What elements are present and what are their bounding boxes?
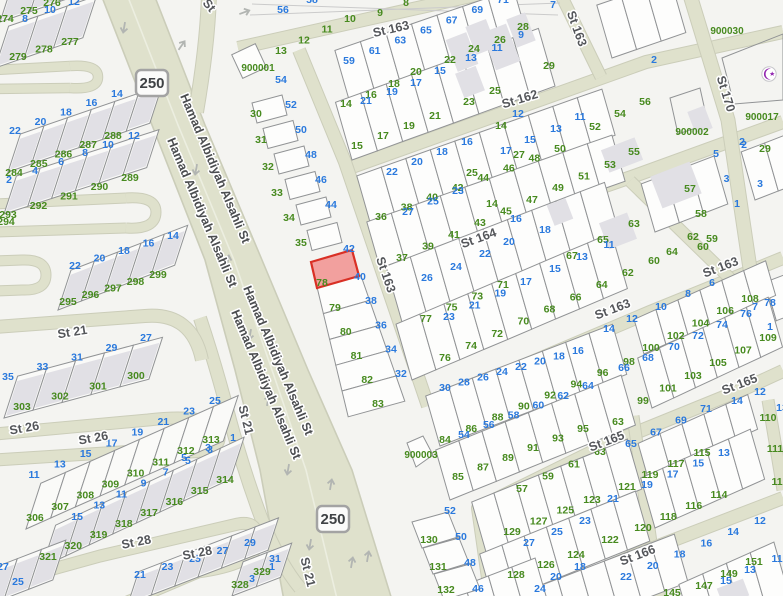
svg-text:18: 18 bbox=[553, 350, 565, 362]
svg-text:18: 18 bbox=[60, 107, 72, 119]
svg-text:56: 56 bbox=[639, 96, 651, 108]
svg-text:277: 277 bbox=[61, 36, 79, 48]
svg-text:319: 319 bbox=[90, 529, 108, 541]
svg-text:60: 60 bbox=[697, 241, 709, 253]
svg-text:7: 7 bbox=[550, 0, 556, 11]
svg-text:105: 105 bbox=[709, 357, 727, 369]
svg-text:72: 72 bbox=[692, 330, 704, 342]
svg-text:118: 118 bbox=[660, 511, 677, 523]
svg-text:70: 70 bbox=[668, 341, 680, 353]
svg-text:22: 22 bbox=[386, 166, 398, 178]
svg-text:20: 20 bbox=[534, 356, 546, 368]
svg-text:25: 25 bbox=[209, 395, 221, 407]
svg-text:291: 291 bbox=[60, 191, 78, 203]
svg-text:21: 21 bbox=[134, 569, 146, 581]
svg-text:76: 76 bbox=[740, 308, 752, 320]
svg-text:22: 22 bbox=[515, 361, 527, 373]
svg-text:54: 54 bbox=[275, 74, 287, 86]
svg-text:62: 62 bbox=[557, 390, 569, 402]
svg-text:14: 14 bbox=[495, 120, 507, 132]
svg-text:122: 122 bbox=[601, 534, 619, 546]
svg-text:34: 34 bbox=[385, 344, 397, 356]
svg-text:58: 58 bbox=[306, 0, 318, 6]
svg-text:900001: 900001 bbox=[241, 63, 275, 74]
svg-text:60: 60 bbox=[533, 400, 545, 412]
svg-text:59: 59 bbox=[542, 471, 554, 483]
svg-text:3: 3 bbox=[249, 573, 255, 585]
svg-text:117: 117 bbox=[668, 458, 685, 470]
svg-text:39: 39 bbox=[422, 240, 434, 252]
svg-text:296: 296 bbox=[82, 289, 100, 301]
svg-text:58: 58 bbox=[695, 208, 707, 220]
svg-text:9: 9 bbox=[141, 477, 147, 489]
svg-text:27: 27 bbox=[523, 537, 535, 549]
svg-text:5: 5 bbox=[181, 452, 187, 464]
svg-text:32: 32 bbox=[262, 161, 274, 173]
svg-text:18: 18 bbox=[539, 224, 551, 236]
svg-text:10: 10 bbox=[44, 4, 56, 16]
svg-text:57: 57 bbox=[684, 183, 696, 195]
svg-text:116: 116 bbox=[685, 500, 702, 512]
svg-text:70: 70 bbox=[518, 316, 530, 328]
svg-text:128: 128 bbox=[507, 569, 525, 581]
svg-text:306: 306 bbox=[26, 512, 44, 524]
svg-text:9: 9 bbox=[518, 29, 524, 41]
svg-text:12: 12 bbox=[754, 515, 766, 527]
svg-text:9: 9 bbox=[377, 7, 383, 19]
svg-text:16: 16 bbox=[701, 537, 713, 549]
svg-text:12: 12 bbox=[626, 313, 638, 325]
svg-text:63: 63 bbox=[394, 35, 406, 47]
svg-text:127: 127 bbox=[530, 515, 548, 527]
svg-text:26: 26 bbox=[421, 272, 433, 284]
svg-text:3: 3 bbox=[205, 442, 211, 454]
svg-text:328: 328 bbox=[231, 579, 249, 591]
svg-text:3: 3 bbox=[724, 173, 730, 185]
svg-text:20: 20 bbox=[550, 571, 562, 583]
svg-text:101: 101 bbox=[659, 382, 677, 394]
svg-text:64: 64 bbox=[666, 246, 678, 258]
svg-text:108: 108 bbox=[741, 293, 759, 305]
svg-text:2: 2 bbox=[651, 54, 657, 66]
svg-text:12: 12 bbox=[128, 130, 140, 142]
svg-text:303: 303 bbox=[13, 401, 31, 413]
svg-text:23: 23 bbox=[162, 561, 174, 573]
svg-text:64: 64 bbox=[596, 279, 608, 291]
svg-text:25: 25 bbox=[466, 167, 478, 179]
svg-text:61: 61 bbox=[568, 458, 580, 470]
svg-text:107: 107 bbox=[734, 345, 752, 357]
svg-text:23: 23 bbox=[452, 185, 464, 197]
svg-text:62: 62 bbox=[622, 267, 634, 279]
svg-text:10: 10 bbox=[102, 139, 114, 151]
svg-text:62: 62 bbox=[687, 231, 699, 243]
svg-text:29: 29 bbox=[244, 537, 256, 549]
svg-text:23: 23 bbox=[443, 311, 455, 323]
svg-text:294: 294 bbox=[0, 216, 15, 228]
svg-text:2: 2 bbox=[6, 174, 12, 186]
svg-text:22: 22 bbox=[479, 248, 491, 260]
svg-text:68: 68 bbox=[642, 352, 654, 364]
svg-text:129: 129 bbox=[503, 526, 521, 538]
svg-text:76: 76 bbox=[439, 352, 451, 364]
svg-text:23: 23 bbox=[463, 96, 475, 108]
svg-text:320: 320 bbox=[65, 540, 83, 552]
svg-text:274: 274 bbox=[0, 13, 14, 25]
svg-text:14: 14 bbox=[731, 395, 743, 407]
svg-text:17: 17 bbox=[500, 145, 512, 157]
svg-text:112: 112 bbox=[772, 476, 783, 488]
svg-text:50: 50 bbox=[295, 124, 307, 136]
svg-text:316: 316 bbox=[166, 496, 184, 508]
svg-text:16: 16 bbox=[143, 238, 155, 250]
svg-text:15: 15 bbox=[80, 448, 92, 460]
svg-text:2: 2 bbox=[741, 139, 747, 151]
svg-text:297: 297 bbox=[104, 283, 122, 295]
svg-text:53: 53 bbox=[604, 159, 616, 171]
svg-text:115: 115 bbox=[694, 447, 711, 459]
svg-text:31: 31 bbox=[255, 134, 267, 146]
svg-text:15: 15 bbox=[549, 263, 561, 275]
svg-text:308: 308 bbox=[77, 490, 95, 502]
svg-text:93: 93 bbox=[552, 433, 564, 445]
svg-text:7: 7 bbox=[163, 466, 169, 478]
svg-text:59: 59 bbox=[343, 55, 355, 67]
svg-text:103: 103 bbox=[684, 370, 702, 382]
svg-text:900017: 900017 bbox=[745, 112, 779, 123]
svg-text:55: 55 bbox=[628, 146, 640, 158]
svg-text:21: 21 bbox=[157, 416, 169, 428]
svg-text:17: 17 bbox=[377, 130, 389, 142]
svg-text:25: 25 bbox=[489, 85, 501, 97]
svg-text:46: 46 bbox=[472, 583, 484, 595]
svg-text:106: 106 bbox=[716, 305, 734, 317]
svg-text:22: 22 bbox=[9, 125, 21, 137]
svg-text:300: 300 bbox=[127, 370, 145, 382]
svg-text:44: 44 bbox=[477, 172, 489, 184]
svg-text:27: 27 bbox=[140, 332, 152, 344]
svg-text:19: 19 bbox=[403, 120, 415, 132]
svg-text:17: 17 bbox=[667, 468, 679, 480]
svg-text:64: 64 bbox=[582, 380, 594, 392]
svg-text:124: 124 bbox=[567, 549, 585, 561]
svg-text:13: 13 bbox=[718, 447, 730, 459]
svg-text:111: 111 bbox=[767, 443, 783, 455]
svg-text:18: 18 bbox=[674, 549, 686, 561]
svg-text:44: 44 bbox=[325, 199, 337, 211]
svg-text:80: 80 bbox=[340, 326, 352, 338]
svg-text:13: 13 bbox=[576, 251, 588, 263]
svg-text:19: 19 bbox=[386, 86, 398, 98]
svg-text:317: 317 bbox=[140, 507, 158, 519]
svg-text:21: 21 bbox=[607, 493, 619, 505]
svg-text:48: 48 bbox=[529, 153, 541, 165]
svg-text:301: 301 bbox=[89, 380, 107, 392]
svg-text:292: 292 bbox=[30, 200, 48, 212]
svg-text:20: 20 bbox=[411, 156, 423, 168]
svg-text:12: 12 bbox=[298, 34, 310, 46]
svg-text:67: 67 bbox=[650, 426, 662, 438]
svg-text:298: 298 bbox=[127, 276, 145, 288]
svg-text:14: 14 bbox=[167, 230, 179, 242]
svg-text:18: 18 bbox=[436, 146, 448, 158]
svg-text:38: 38 bbox=[365, 295, 377, 307]
svg-text:46: 46 bbox=[315, 174, 327, 186]
svg-text:11: 11 bbox=[28, 469, 39, 481]
svg-text:8: 8 bbox=[685, 288, 691, 300]
svg-text:15: 15 bbox=[720, 575, 732, 587]
svg-text:20: 20 bbox=[410, 66, 422, 78]
svg-text:13: 13 bbox=[465, 52, 477, 64]
svg-text:27: 27 bbox=[0, 561, 9, 573]
svg-text:12: 12 bbox=[68, 0, 80, 8]
svg-text:114: 114 bbox=[711, 489, 728, 501]
svg-text:121: 121 bbox=[618, 481, 636, 493]
svg-text:14: 14 bbox=[486, 198, 498, 210]
svg-text:307: 307 bbox=[51, 501, 69, 513]
svg-text:56: 56 bbox=[277, 4, 289, 16]
svg-text:66: 66 bbox=[570, 291, 582, 303]
svg-text:3: 3 bbox=[757, 178, 763, 190]
svg-text:318: 318 bbox=[115, 518, 133, 530]
svg-text:92: 92 bbox=[544, 389, 556, 401]
svg-text:10: 10 bbox=[655, 301, 667, 313]
svg-text:29: 29 bbox=[106, 342, 118, 354]
svg-text:51: 51 bbox=[578, 171, 590, 183]
svg-text:13: 13 bbox=[54, 458, 66, 470]
svg-text:91: 91 bbox=[527, 442, 539, 454]
svg-text:84: 84 bbox=[439, 434, 451, 446]
svg-text:24: 24 bbox=[534, 583, 546, 595]
svg-text:16: 16 bbox=[572, 345, 584, 357]
svg-text:8: 8 bbox=[82, 147, 88, 159]
svg-text:120: 120 bbox=[634, 522, 652, 534]
svg-text:17: 17 bbox=[410, 77, 422, 89]
svg-text:96: 96 bbox=[597, 367, 609, 379]
svg-text:278: 278 bbox=[35, 44, 53, 56]
svg-text:65: 65 bbox=[420, 25, 432, 37]
svg-text:34: 34 bbox=[283, 212, 295, 224]
svg-text:66: 66 bbox=[618, 362, 630, 374]
svg-text:25: 25 bbox=[551, 526, 563, 538]
svg-text:25: 25 bbox=[12, 576, 24, 588]
svg-text:77: 77 bbox=[420, 313, 432, 325]
svg-text:90: 90 bbox=[518, 401, 530, 413]
svg-text:85: 85 bbox=[452, 471, 464, 483]
svg-text:95: 95 bbox=[577, 423, 589, 435]
svg-text:4: 4 bbox=[32, 165, 38, 177]
svg-text:104: 104 bbox=[692, 318, 710, 330]
svg-text:126: 126 bbox=[537, 559, 555, 571]
svg-text:13: 13 bbox=[93, 500, 105, 512]
svg-text:13: 13 bbox=[776, 402, 783, 414]
svg-text:8: 8 bbox=[403, 0, 409, 9]
svg-text:321: 321 bbox=[39, 551, 57, 563]
svg-text:14: 14 bbox=[340, 98, 352, 110]
svg-text:31: 31 bbox=[71, 352, 83, 364]
svg-text:33: 33 bbox=[37, 361, 49, 373]
svg-text:130: 130 bbox=[420, 534, 438, 546]
svg-text:19: 19 bbox=[494, 288, 506, 300]
svg-text:27: 27 bbox=[217, 545, 229, 557]
svg-text:11: 11 bbox=[491, 42, 502, 54]
svg-text:250: 250 bbox=[320, 511, 345, 528]
svg-text:52: 52 bbox=[285, 99, 297, 111]
svg-text:46: 46 bbox=[503, 162, 515, 174]
svg-text:71: 71 bbox=[497, 0, 509, 6]
svg-text:110: 110 bbox=[760, 412, 777, 424]
svg-text:87: 87 bbox=[477, 461, 489, 473]
svg-text:78: 78 bbox=[316, 277, 328, 289]
svg-text:40: 40 bbox=[354, 271, 366, 283]
svg-text:8: 8 bbox=[22, 13, 28, 25]
svg-text:78: 78 bbox=[764, 297, 776, 309]
svg-text:67: 67 bbox=[446, 14, 458, 26]
svg-text:15: 15 bbox=[351, 140, 363, 152]
svg-text:19: 19 bbox=[132, 427, 144, 439]
svg-text:89: 89 bbox=[502, 452, 514, 464]
svg-text:123: 123 bbox=[583, 494, 601, 506]
svg-text:22: 22 bbox=[620, 571, 632, 583]
svg-text:83: 83 bbox=[372, 398, 384, 410]
svg-text:47: 47 bbox=[526, 194, 538, 206]
svg-text:12: 12 bbox=[754, 386, 766, 398]
svg-text:35: 35 bbox=[2, 371, 14, 383]
svg-text:48: 48 bbox=[305, 149, 317, 161]
svg-text:35: 35 bbox=[295, 237, 307, 249]
svg-text:16: 16 bbox=[510, 213, 522, 225]
svg-text:11: 11 bbox=[771, 553, 782, 565]
svg-text:290: 290 bbox=[91, 181, 109, 193]
svg-text:58: 58 bbox=[508, 409, 520, 421]
svg-text:52: 52 bbox=[444, 505, 456, 517]
svg-text:49: 49 bbox=[552, 182, 564, 194]
svg-text:29: 29 bbox=[759, 143, 771, 155]
svg-text:145: 145 bbox=[663, 587, 681, 596]
svg-text:900030: 900030 bbox=[710, 26, 744, 37]
svg-text:69: 69 bbox=[675, 415, 687, 427]
svg-text:109: 109 bbox=[759, 332, 777, 344]
svg-text:27: 27 bbox=[402, 206, 414, 218]
svg-text:22: 22 bbox=[444, 54, 456, 66]
svg-text:20: 20 bbox=[503, 236, 515, 248]
svg-text:56: 56 bbox=[483, 419, 495, 431]
svg-text:102: 102 bbox=[667, 330, 685, 342]
svg-text:94: 94 bbox=[571, 378, 583, 390]
svg-text:72: 72 bbox=[491, 328, 503, 340]
svg-text:125: 125 bbox=[557, 505, 575, 517]
svg-text:68: 68 bbox=[544, 304, 556, 316]
svg-text:65: 65 bbox=[625, 438, 637, 450]
svg-text:52: 52 bbox=[589, 121, 601, 133]
svg-text:11: 11 bbox=[116, 489, 127, 501]
svg-text:279: 279 bbox=[9, 51, 27, 63]
svg-text:119: 119 bbox=[642, 469, 659, 481]
svg-text:27: 27 bbox=[513, 149, 525, 161]
svg-text:14: 14 bbox=[111, 88, 123, 100]
svg-text:132: 132 bbox=[437, 584, 455, 596]
svg-text:18: 18 bbox=[118, 245, 130, 257]
svg-text:33: 33 bbox=[271, 187, 283, 199]
svg-text:79: 79 bbox=[329, 302, 341, 314]
svg-text:37: 37 bbox=[396, 252, 408, 264]
svg-text:25: 25 bbox=[427, 196, 439, 208]
svg-text:315: 315 bbox=[191, 485, 209, 497]
svg-text:13: 13 bbox=[744, 564, 756, 576]
svg-text:61: 61 bbox=[369, 45, 381, 57]
svg-text:15: 15 bbox=[434, 65, 446, 77]
svg-text:21: 21 bbox=[469, 299, 481, 311]
svg-text:82: 82 bbox=[361, 374, 373, 386]
svg-text:900003: 900003 bbox=[404, 450, 438, 461]
svg-text:30: 30 bbox=[439, 382, 451, 394]
svg-text:23: 23 bbox=[183, 406, 195, 418]
svg-text:5: 5 bbox=[713, 148, 719, 160]
svg-text:21: 21 bbox=[429, 110, 441, 122]
svg-text:30: 30 bbox=[250, 108, 262, 120]
svg-text:15: 15 bbox=[692, 458, 704, 470]
svg-text:16: 16 bbox=[461, 136, 473, 148]
svg-text:24: 24 bbox=[496, 366, 508, 378]
svg-text:99: 99 bbox=[637, 395, 649, 407]
svg-text:20: 20 bbox=[35, 116, 47, 128]
svg-text:10: 10 bbox=[344, 13, 356, 25]
svg-text:22: 22 bbox=[69, 260, 81, 272]
svg-text:1: 1 bbox=[734, 198, 740, 210]
svg-text:74: 74 bbox=[465, 340, 477, 352]
svg-text:20: 20 bbox=[647, 560, 659, 572]
svg-text:18: 18 bbox=[574, 561, 586, 573]
svg-text:11: 11 bbox=[574, 111, 585, 123]
svg-text:69: 69 bbox=[471, 4, 483, 16]
svg-text:63: 63 bbox=[628, 218, 640, 230]
svg-text:295: 295 bbox=[59, 296, 77, 308]
svg-text:11: 11 bbox=[321, 24, 332, 36]
svg-text:54: 54 bbox=[614, 108, 626, 120]
svg-text:71: 71 bbox=[700, 403, 712, 415]
svg-text:36: 36 bbox=[375, 211, 387, 223]
svg-text:20: 20 bbox=[94, 253, 106, 265]
svg-text:41: 41 bbox=[448, 229, 460, 241]
svg-text:57: 57 bbox=[516, 483, 528, 495]
svg-text:24: 24 bbox=[450, 261, 462, 273]
svg-text:131: 131 bbox=[429, 561, 447, 573]
svg-text:1: 1 bbox=[230, 432, 236, 444]
svg-text:21: 21 bbox=[360, 95, 372, 107]
svg-text:17: 17 bbox=[520, 276, 532, 288]
svg-text:302: 302 bbox=[51, 391, 69, 403]
svg-text:26: 26 bbox=[477, 371, 489, 383]
svg-text:50: 50 bbox=[455, 531, 467, 543]
svg-text:23: 23 bbox=[579, 515, 591, 527]
svg-text:43: 43 bbox=[474, 217, 486, 229]
svg-text:11: 11 bbox=[603, 239, 614, 251]
svg-text:299: 299 bbox=[149, 269, 167, 281]
svg-text:6: 6 bbox=[58, 156, 64, 168]
svg-text:13: 13 bbox=[275, 45, 287, 57]
svg-text:48: 48 bbox=[464, 557, 476, 569]
svg-text:900002: 900002 bbox=[675, 127, 709, 138]
svg-text:60: 60 bbox=[648, 255, 660, 267]
svg-text:42: 42 bbox=[343, 243, 355, 255]
svg-text:14: 14 bbox=[603, 323, 615, 335]
svg-text:16: 16 bbox=[86, 97, 98, 109]
svg-text:13: 13 bbox=[550, 123, 562, 135]
svg-text:147: 147 bbox=[695, 580, 713, 592]
svg-text:54: 54 bbox=[458, 429, 470, 441]
svg-text:14: 14 bbox=[727, 526, 739, 538]
svg-text:15: 15 bbox=[71, 511, 83, 523]
